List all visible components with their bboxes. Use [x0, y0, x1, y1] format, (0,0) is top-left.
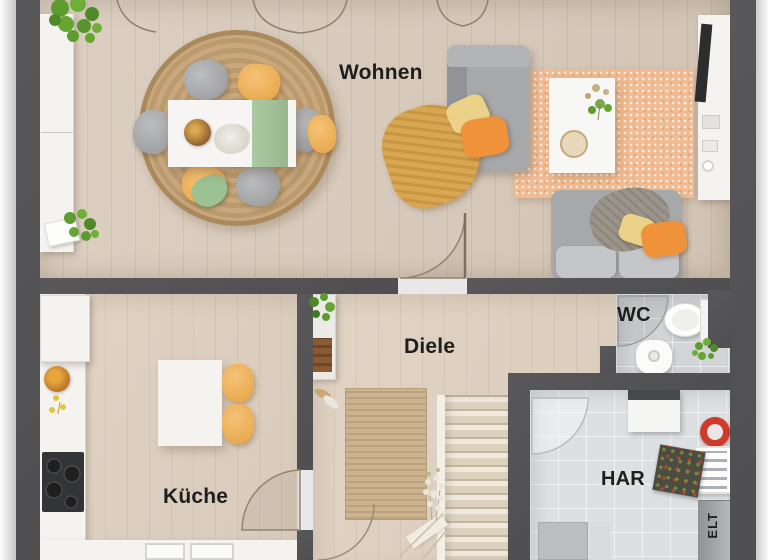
room-label-hallway: Diele [404, 336, 455, 357]
wall-kitchen-partition-upper [297, 294, 313, 470]
wall-exterior-right [730, 0, 756, 560]
table-runner [252, 100, 288, 167]
utility-box [590, 522, 610, 560]
stair-stringer [437, 395, 445, 560]
room-label-utility: HAR [601, 469, 645, 489]
wall-wc-stub [708, 290, 732, 348]
sofa-chaise-armrest [447, 45, 530, 67]
kitchen-sink [190, 543, 234, 560]
kitchen-table [158, 360, 222, 446]
sideboard [40, 14, 74, 252]
room-label-living: Wohnen [339, 62, 423, 83]
wall-kitchen-partition-lower [297, 530, 313, 560]
staircase [445, 395, 508, 560]
basin-drain [648, 350, 660, 362]
speaker [702, 140, 718, 152]
toilet-seat [672, 309, 699, 331]
wall-utility-top [508, 373, 730, 390]
room-label-kitchen: Küche [163, 486, 228, 507]
cup [702, 160, 714, 172]
washing-machine-panel [628, 390, 680, 400]
margin-right-edge [756, 0, 768, 560]
hall-rug [345, 388, 427, 520]
wall-exterior-left [16, 0, 40, 560]
wall-interior-main-left [40, 278, 398, 294]
kitchen-chair [222, 364, 254, 402]
kitchen-chair [222, 404, 254, 444]
fridge [40, 295, 90, 362]
margin-left-edge [0, 0, 16, 560]
coffee-table [549, 78, 615, 173]
fruit-bowl [44, 366, 70, 392]
pillow-orange [640, 219, 688, 259]
tray [560, 130, 588, 158]
sofa-cushion [556, 246, 616, 278]
sideboard-divider [41, 132, 73, 133]
kitchen-sink [145, 543, 185, 560]
utility-box [538, 522, 588, 560]
room-label-electrical: ELT [706, 512, 719, 539]
centerpiece-bowl [184, 119, 211, 146]
wall-utility-left [508, 373, 530, 560]
room-label-wc: WC [617, 305, 651, 325]
shelf-books [311, 338, 332, 372]
speaker [702, 115, 720, 129]
doormat [652, 444, 705, 497]
wall-interior-main-right [467, 278, 730, 294]
floor-plan-canvas: Wohnen Küche Diele WC HAR ELT [0, 0, 768, 560]
cooktop [42, 452, 84, 512]
